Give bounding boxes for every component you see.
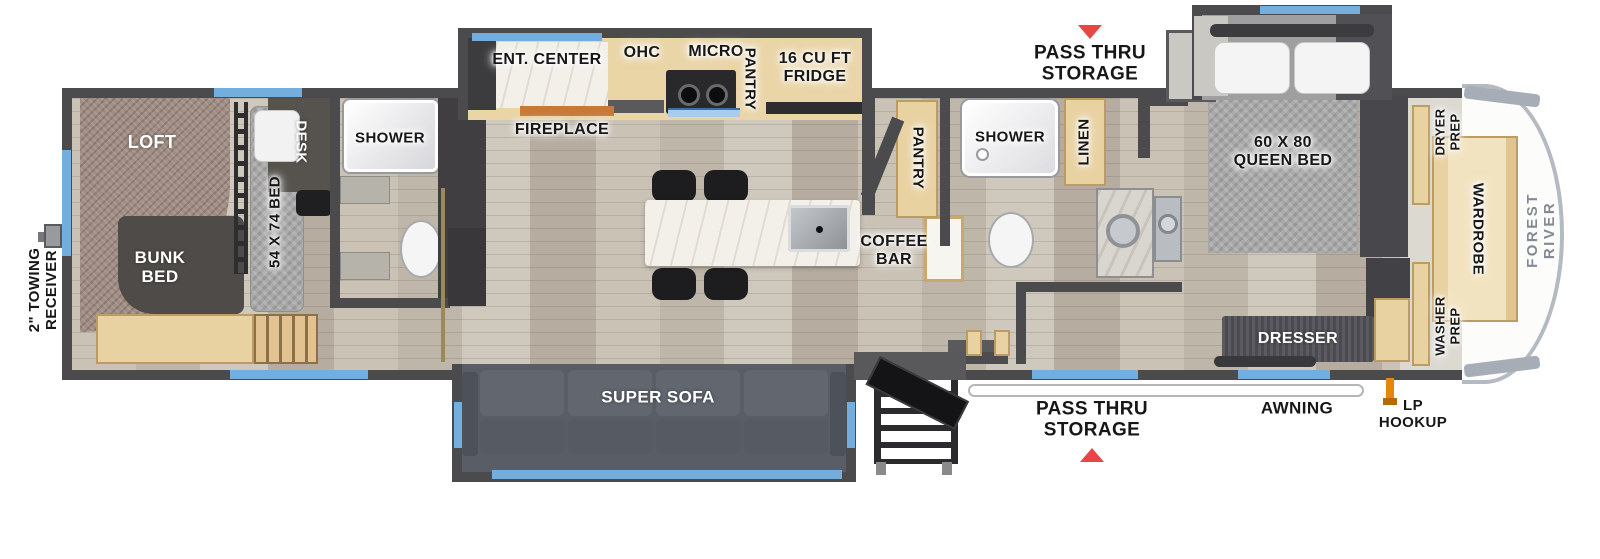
stove-glow (668, 108, 740, 117)
bedroom-window (1260, 6, 1360, 14)
label-dresser: DRESSER (1258, 330, 1338, 348)
queen-bed (1208, 95, 1358, 253)
window-strip (230, 370, 368, 379)
sofa-seat-cushion (744, 420, 828, 454)
kitchen-counter (608, 100, 664, 113)
awning-bar (968, 384, 1364, 397)
fireplace-front (520, 106, 614, 116)
rear-bath-bottom-wall (334, 298, 450, 308)
arrow-up-icon (1080, 448, 1104, 462)
sink-icon (1106, 214, 1140, 248)
dryer-prep-cabinet (1412, 105, 1430, 205)
sofa-armrest (830, 372, 846, 456)
pillow (1214, 42, 1290, 94)
label-dryer-prep: DRYER PREP (1433, 108, 1462, 155)
entry-post (994, 330, 1010, 356)
pillow (1294, 42, 1370, 94)
rear-bath-wall (330, 96, 340, 308)
bar-stool (652, 268, 696, 300)
label-fridge: 16 CU FT FRIDGE (779, 50, 852, 86)
sofa-seat-cushion (656, 420, 740, 454)
window-strip (1238, 370, 1330, 379)
bunk-base-storage (96, 314, 254, 364)
drain-icon (976, 148, 989, 161)
label-bunk-bed: BUNK BED (135, 248, 186, 286)
sofa-window (847, 402, 855, 448)
step-foot (876, 462, 886, 475)
label-wardrobe: WARDROBE (1469, 183, 1486, 275)
label-washer-prep: WASHER PREP (1433, 296, 1462, 355)
label-shower-mid: SHOWER (975, 130, 1045, 147)
label-bed-54x74: 54 X 74 BED (268, 176, 285, 268)
mid-bath-wall (940, 96, 950, 246)
desk-chair (296, 190, 332, 216)
door-rod (441, 188, 445, 362)
headboard (1210, 24, 1374, 37)
label-pantry-mid: PANTRY (909, 127, 926, 189)
tv-panel (448, 228, 486, 306)
bar-stool (704, 170, 748, 202)
hall-wall-stub (1016, 282, 1026, 364)
step-foot (942, 462, 952, 475)
label-lp-hookup: LP HOOKUP (1379, 398, 1447, 432)
bar-stool (704, 268, 748, 300)
sofa-seat-cushion (568, 420, 652, 454)
window-strip (1032, 370, 1138, 379)
dresser-side-cabinet (1374, 298, 1410, 362)
arrow-down-icon (1078, 25, 1102, 39)
sofa-window (454, 402, 462, 448)
label-awning: AWNING (1261, 398, 1333, 417)
burner-icon (678, 84, 700, 106)
vanity-counter (340, 176, 390, 204)
label-pass-thru-storage-bottom: PASS THRU STORAGE (1036, 399, 1148, 442)
label-ohc: OHC (624, 44, 661, 62)
sofa-back-cushion (744, 370, 828, 416)
toilet-icon (988, 212, 1034, 268)
label-towing-receiver: 2" TOWING RECEIVER (27, 248, 61, 333)
sofa-window (492, 470, 842, 479)
loft-stairs (254, 314, 318, 364)
label-linen: LINEN (1077, 119, 1094, 166)
bar-stool (652, 170, 696, 202)
label-pass-thru-storage-top: PASS THRU STORAGE (1034, 43, 1146, 86)
label-queen-bed: 60 X 80 QUEEN BED (1234, 134, 1333, 170)
label-shower-rear: SHOWER (355, 131, 425, 148)
sofa-back-cushion (480, 370, 564, 416)
toilet-icon (400, 220, 442, 278)
label-pantry-kitchen: PANTRY (741, 48, 758, 110)
label-desk: DESK (292, 120, 309, 163)
label-micro: MICRO (688, 43, 743, 61)
brand-logo: FOREST RIVER (1525, 192, 1559, 268)
fridge-front (766, 102, 862, 114)
washer-prep-cabinet (1412, 262, 1430, 366)
window-strip (62, 150, 71, 256)
label-coffee-bar: COFFEE BAR (860, 233, 927, 269)
mid-bath-bottom-wall (1016, 282, 1182, 292)
bedroom-tv-cabinet (1360, 95, 1408, 257)
vanity-counter (340, 252, 390, 280)
window-strip (214, 88, 302, 97)
label-ent-center: ENT. CENTER (492, 51, 601, 69)
corner-cabinet (468, 38, 496, 110)
floor-mat (1214, 356, 1316, 367)
washer-drum-icon (1158, 214, 1178, 234)
label-super-sofa: SUPER SOFA (601, 387, 715, 406)
burner-icon (706, 84, 728, 106)
entry-post (966, 330, 982, 356)
sofa-seat-cushion (480, 420, 564, 454)
floorplan-canvas: PASS THRU STORAGE ENT. CENTER OHC MICRO … (0, 0, 1600, 559)
loft-ladder (234, 102, 248, 274)
faucet-icon (816, 226, 823, 233)
label-loft: LOFT (128, 132, 177, 152)
sofa-armrest (462, 372, 478, 456)
label-fireplace: FIREPLACE (515, 121, 609, 139)
towing-receiver-icon (44, 224, 62, 248)
kitchen-window (472, 33, 602, 41)
